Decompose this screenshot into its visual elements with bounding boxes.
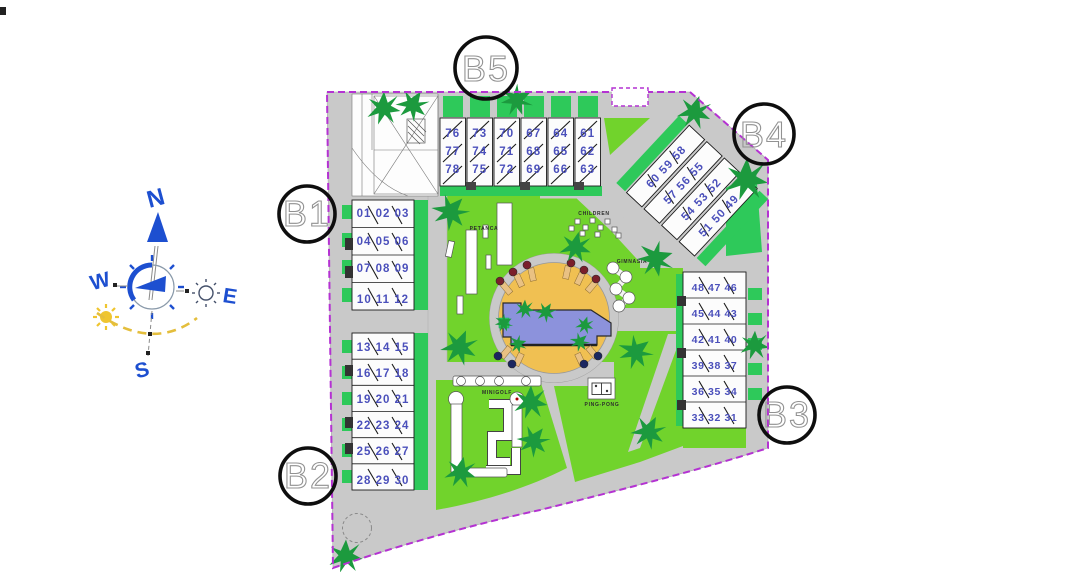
sun-icon bbox=[93, 304, 119, 330]
unit-numbers-row: 04 05 06 bbox=[357, 236, 410, 248]
edge-artifact bbox=[0, 7, 6, 15]
unit-number: 69 bbox=[526, 164, 541, 176]
unit-numbers-row: 19 20 21 bbox=[357, 394, 410, 406]
block-b3-label: B3 bbox=[763, 394, 811, 435]
petanca-label: PETANCA bbox=[470, 226, 499, 232]
minigolf-label: MINIGOLF bbox=[482, 390, 512, 396]
unit-numbers-row: 16 17 18 bbox=[357, 368, 410, 380]
compass-rose: N W E S bbox=[88, 183, 239, 383]
compass-south-label: S bbox=[133, 358, 152, 384]
children-label: CHILDREN bbox=[578, 211, 609, 217]
site-plan-page: N W E S bbox=[0, 0, 1080, 572]
unit-number: 73 bbox=[472, 128, 487, 140]
unit-number: 71 bbox=[499, 146, 514, 158]
unit-numbers-row: 13 14 15 bbox=[357, 342, 410, 354]
block-b2-badge: B2 bbox=[280, 448, 336, 504]
block-b4-badge: B4 bbox=[734, 104, 794, 164]
compass-west-label: W bbox=[88, 268, 113, 295]
unit-number: 66 bbox=[553, 164, 568, 176]
unit-number: 62 bbox=[580, 146, 595, 158]
compass-needle-icon bbox=[135, 276, 166, 292]
unit-numbers-row: 07 08 09 bbox=[357, 263, 410, 275]
unit-numbers-row: 36 35 34 bbox=[692, 386, 738, 398]
unit-numbers-row: 42 41 40 bbox=[692, 334, 738, 346]
unit-numbers-row: 39 38 37 bbox=[692, 360, 738, 372]
compass-east-label: E bbox=[221, 284, 238, 309]
unit-number: 77 bbox=[445, 146, 460, 158]
unit-numbers-row: 10 11 12 bbox=[357, 294, 409, 306]
unit-number: 75 bbox=[472, 164, 487, 176]
block-b1-badge: B1 bbox=[279, 186, 335, 242]
unit-number: 68 bbox=[526, 146, 541, 158]
pingpong-area: PING-PONG bbox=[585, 378, 620, 408]
unit-number: 65 bbox=[553, 146, 568, 158]
sun-outline-icon bbox=[192, 279, 220, 307]
block-b1-label: B1 bbox=[283, 193, 331, 234]
unit-number: 64 bbox=[553, 128, 568, 140]
unit-numbers-row: 25 26 27 bbox=[357, 446, 410, 458]
block-b5-label: B5 bbox=[462, 48, 510, 89]
unit-numbers-row: 28 29 30 bbox=[357, 475, 410, 487]
block-b2-label: B2 bbox=[284, 455, 332, 496]
compass-north-label: N bbox=[144, 183, 168, 214]
site-plan-svg: N W E S bbox=[0, 0, 1080, 572]
north-arrow-icon bbox=[147, 212, 168, 242]
block-b5-badge: B5 bbox=[455, 37, 517, 99]
pool-plaza bbox=[490, 254, 619, 383]
unit-numbers-row: 22 23 24 bbox=[357, 420, 410, 432]
unit-number: 61 bbox=[580, 128, 595, 140]
unit-number: 63 bbox=[580, 164, 595, 176]
unit-number: 67 bbox=[526, 128, 541, 140]
lawn-below-b3 bbox=[683, 428, 746, 448]
unit-number: 72 bbox=[499, 164, 514, 176]
sun-path-arc bbox=[97, 313, 197, 334]
unit-number: 70 bbox=[499, 128, 514, 140]
unit-numbers-row: 01 02 03 bbox=[357, 208, 410, 220]
unit-numbers-row: 45 44 43 bbox=[692, 308, 738, 320]
unit-number: 78 bbox=[445, 164, 460, 176]
unit-numbers-row: 48 47 46 bbox=[692, 282, 738, 294]
block-b3-buildings: 48 47 46 45 44 43 42 41 40 39 38 37 36 3… bbox=[677, 272, 746, 428]
boundary-notch bbox=[612, 88, 648, 106]
block-b1-buildings: 01 02 03 04 05 06 07 08 09 10 11 12 bbox=[345, 200, 414, 310]
pingpong-label: PING-PONG bbox=[585, 402, 620, 408]
unit-number: 76 bbox=[445, 128, 460, 140]
block-b2-buildings: 13 14 15 16 17 18 19 20 21 22 23 24 25 2… bbox=[345, 333, 414, 490]
block-b4-label: B4 bbox=[740, 114, 788, 155]
block-b3-badge: B3 bbox=[759, 387, 815, 443]
unit-number: 74 bbox=[472, 146, 487, 158]
unit-numbers-row: 33 32 31 bbox=[692, 412, 738, 424]
